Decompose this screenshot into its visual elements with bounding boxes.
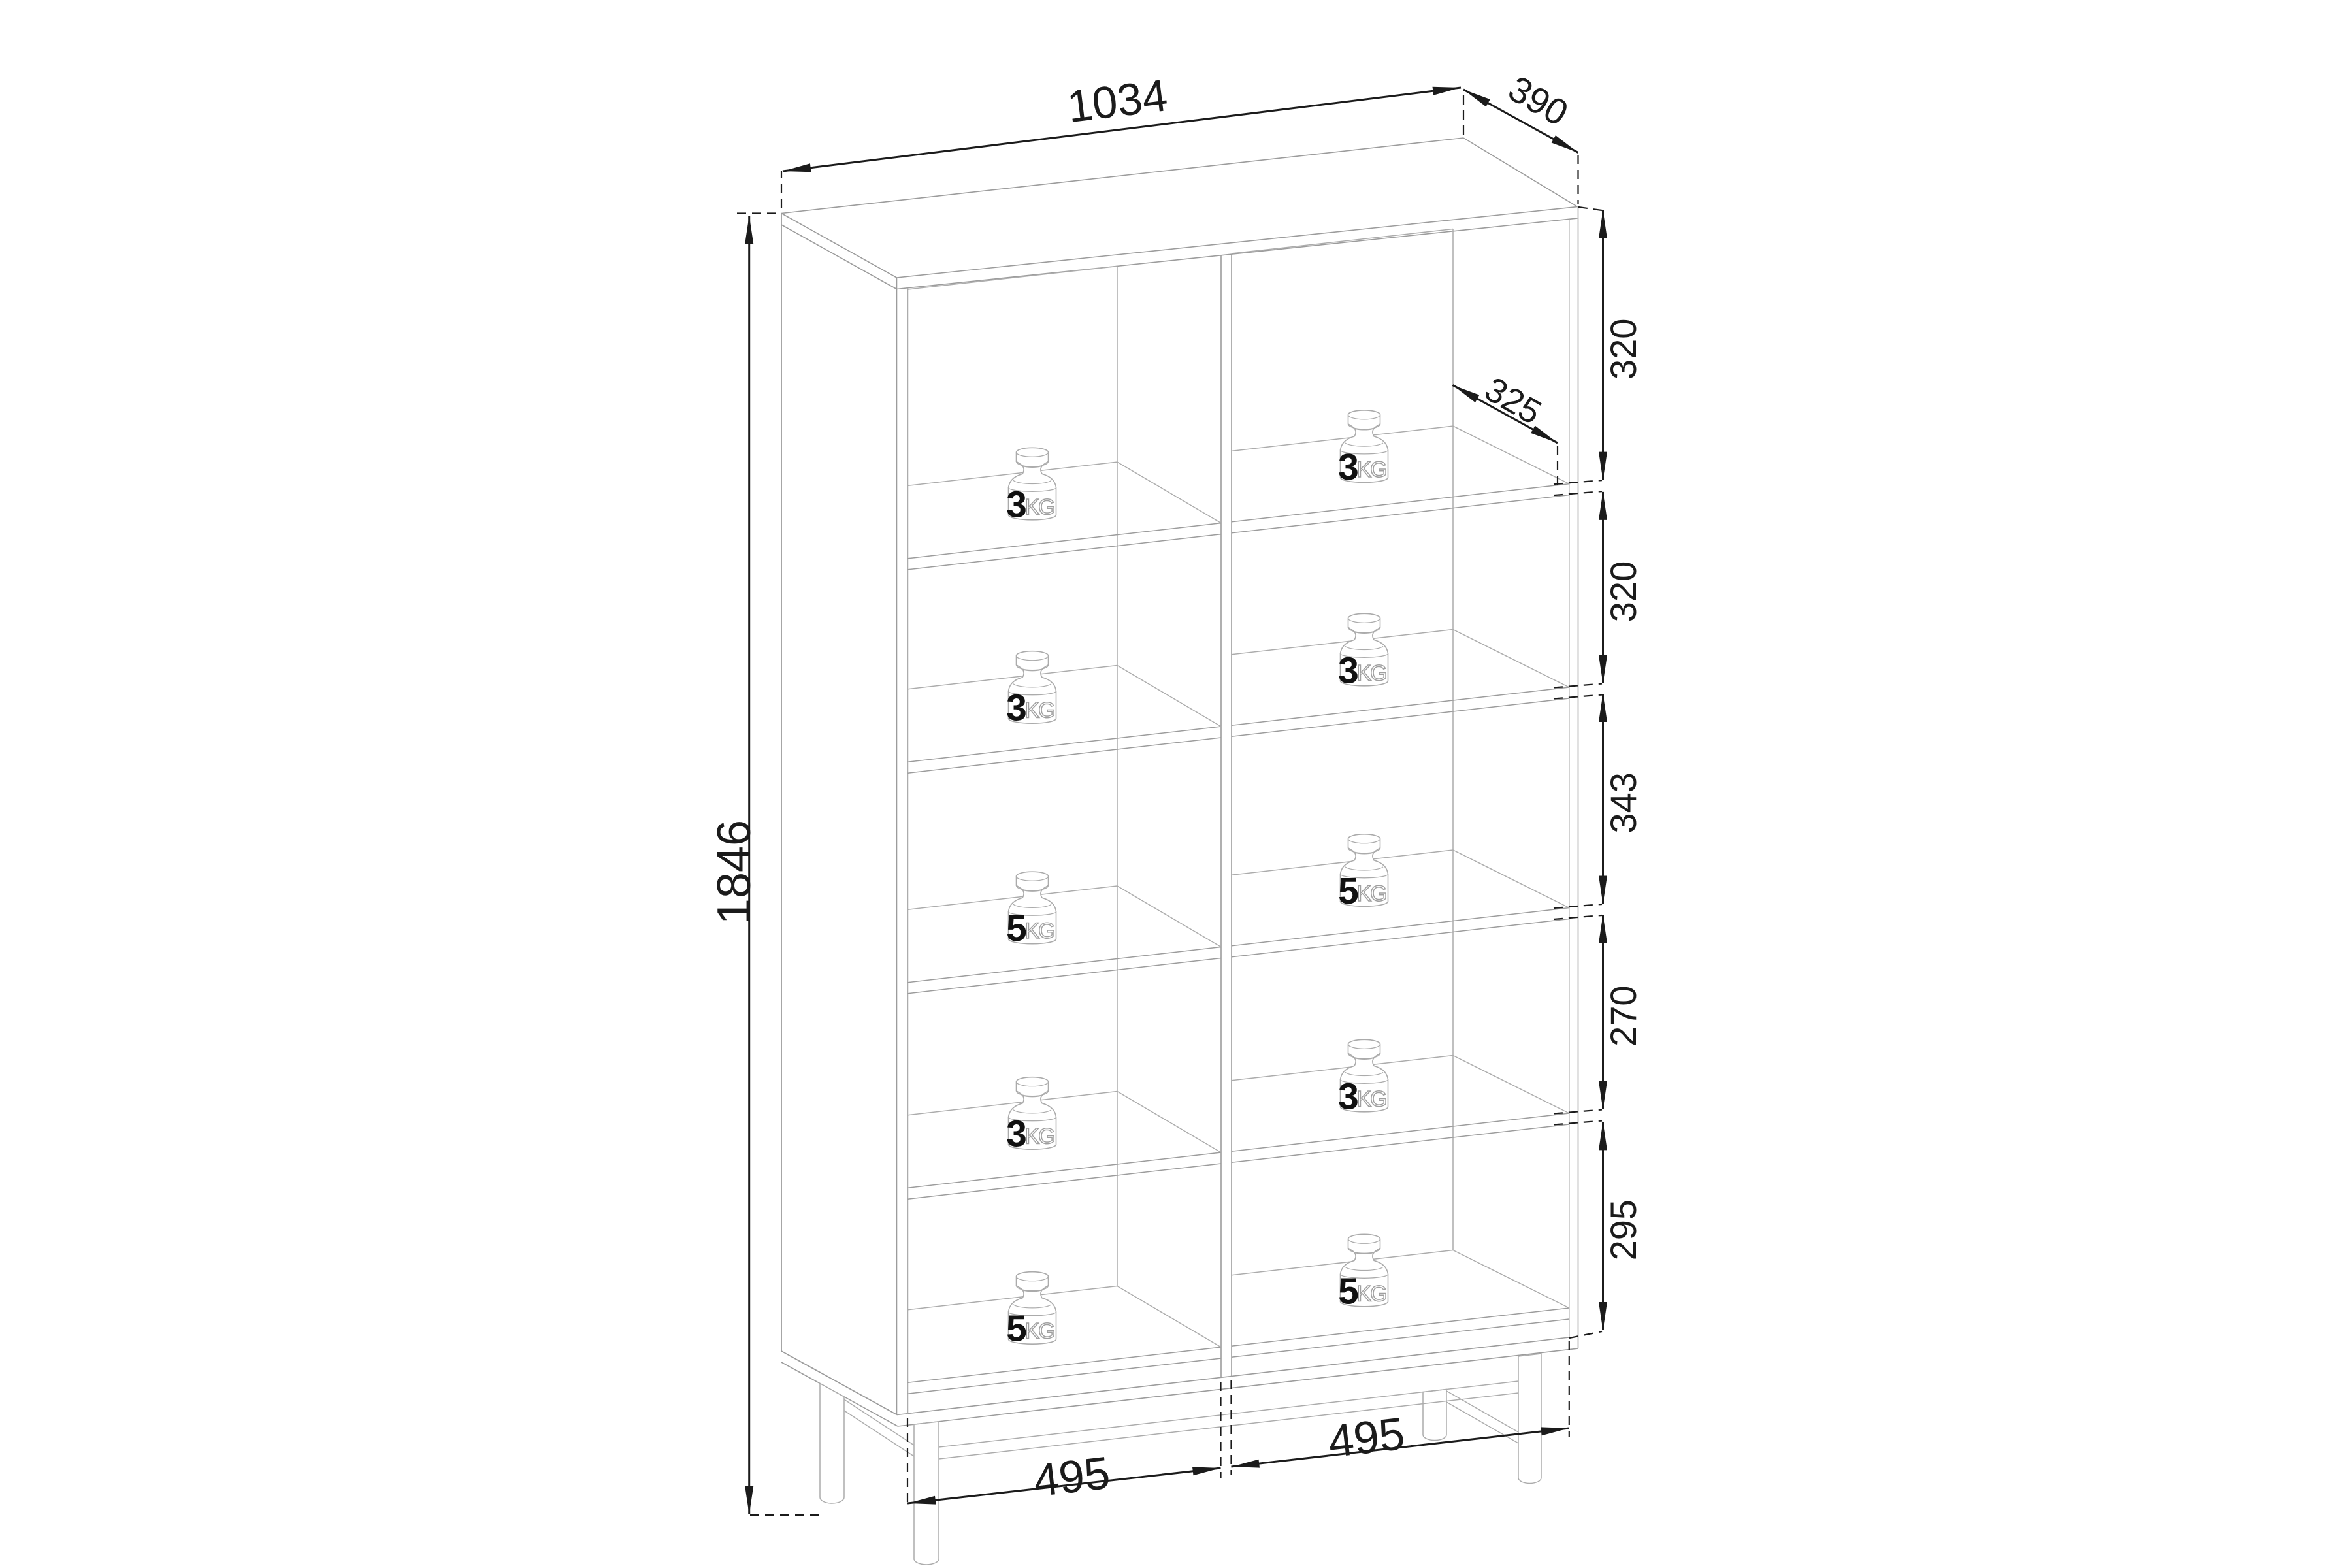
svg-text:KG: KG	[1356, 881, 1386, 906]
svg-text:5: 5	[1006, 907, 1027, 949]
svg-text:343: 343	[1603, 772, 1644, 833]
svg-text:KG: KG	[1024, 1124, 1054, 1149]
svg-text:3: 3	[1006, 483, 1027, 525]
svg-text:KG: KG	[1356, 661, 1386, 685]
svg-text:KG: KG	[1024, 919, 1054, 943]
svg-text:3: 3	[1338, 649, 1359, 691]
svg-text:KG: KG	[1356, 457, 1386, 482]
svg-text:KG: KG	[1356, 1281, 1386, 1306]
svg-text:5: 5	[1338, 870, 1359, 912]
svg-text:320: 320	[1603, 561, 1644, 622]
svg-text:KG: KG	[1024, 1319, 1054, 1344]
svg-text:KG: KG	[1024, 698, 1054, 723]
svg-text:295: 295	[1603, 1200, 1644, 1260]
svg-text:5: 5	[1338, 1270, 1359, 1312]
svg-text:3: 3	[1338, 446, 1359, 488]
svg-text:495: 495	[1031, 1447, 1113, 1507]
svg-text:1846: 1846	[708, 820, 760, 924]
svg-text:KG: KG	[1356, 1086, 1386, 1111]
svg-text:3: 3	[1006, 1113, 1027, 1155]
svg-text:3: 3	[1338, 1075, 1359, 1117]
svg-text:495: 495	[1326, 1408, 1407, 1467]
svg-text:3: 3	[1006, 687, 1027, 729]
svg-text:320: 320	[1603, 319, 1644, 380]
svg-text:270: 270	[1603, 985, 1644, 1046]
svg-text:5: 5	[1006, 1308, 1027, 1350]
svg-text:KG: KG	[1024, 495, 1054, 519]
